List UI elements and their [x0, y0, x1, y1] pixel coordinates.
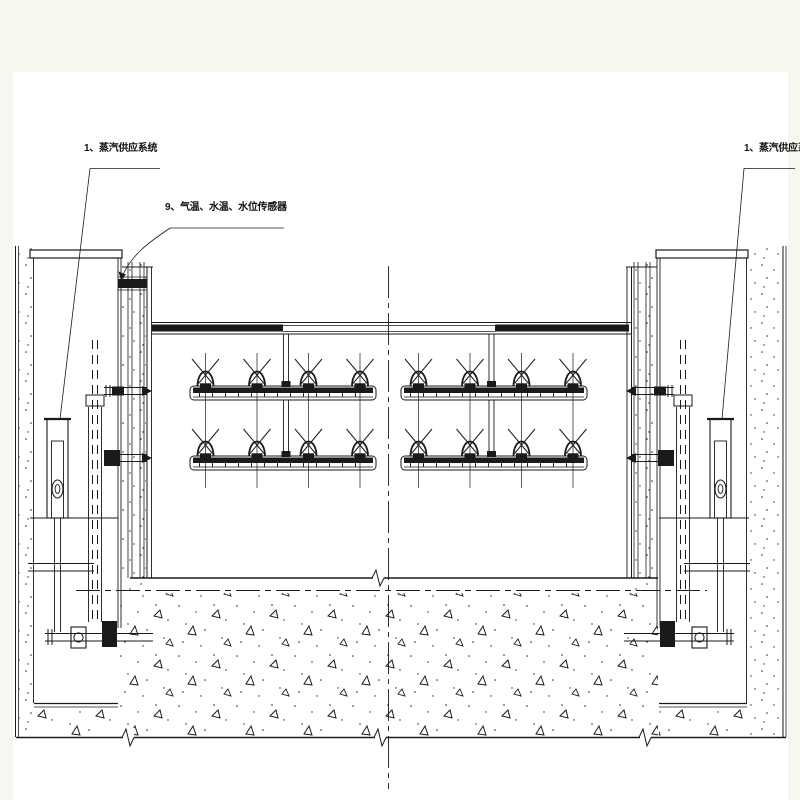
right-leader: [722, 169, 744, 420]
pipe-right-row2: [401, 456, 587, 470]
valve: [692, 627, 707, 648]
pipe-left-row2: [190, 456, 376, 470]
pipe-right-row1: [401, 386, 587, 400]
pipe-left-row1: [190, 386, 376, 400]
gate-body: [130, 267, 658, 587]
right-system-label: 1、蒸汽供应系统: [744, 139, 800, 154]
valve: [71, 627, 86, 648]
concrete-hatching: [19, 248, 783, 736]
spray-nozzles: [192, 359, 587, 458]
left-system-label: 1、蒸汽供应系统: [84, 139, 157, 154]
pipe-elbow: [102, 621, 117, 647]
pipe-elbow: [660, 621, 675, 647]
sensor-label: 9、气温、水温、水位传感器: [165, 198, 287, 213]
drawing-sheet: 1、蒸汽供应系统 9、气温、水温、水位传感器 1、蒸汽供应系统: [0, 0, 800, 800]
right-cylinder-device: [707, 419, 734, 632]
gate-cross-section-drawing: [0, 0, 800, 800]
left-leader: [60, 169, 90, 420]
left-cylinder-device: [44, 419, 71, 632]
